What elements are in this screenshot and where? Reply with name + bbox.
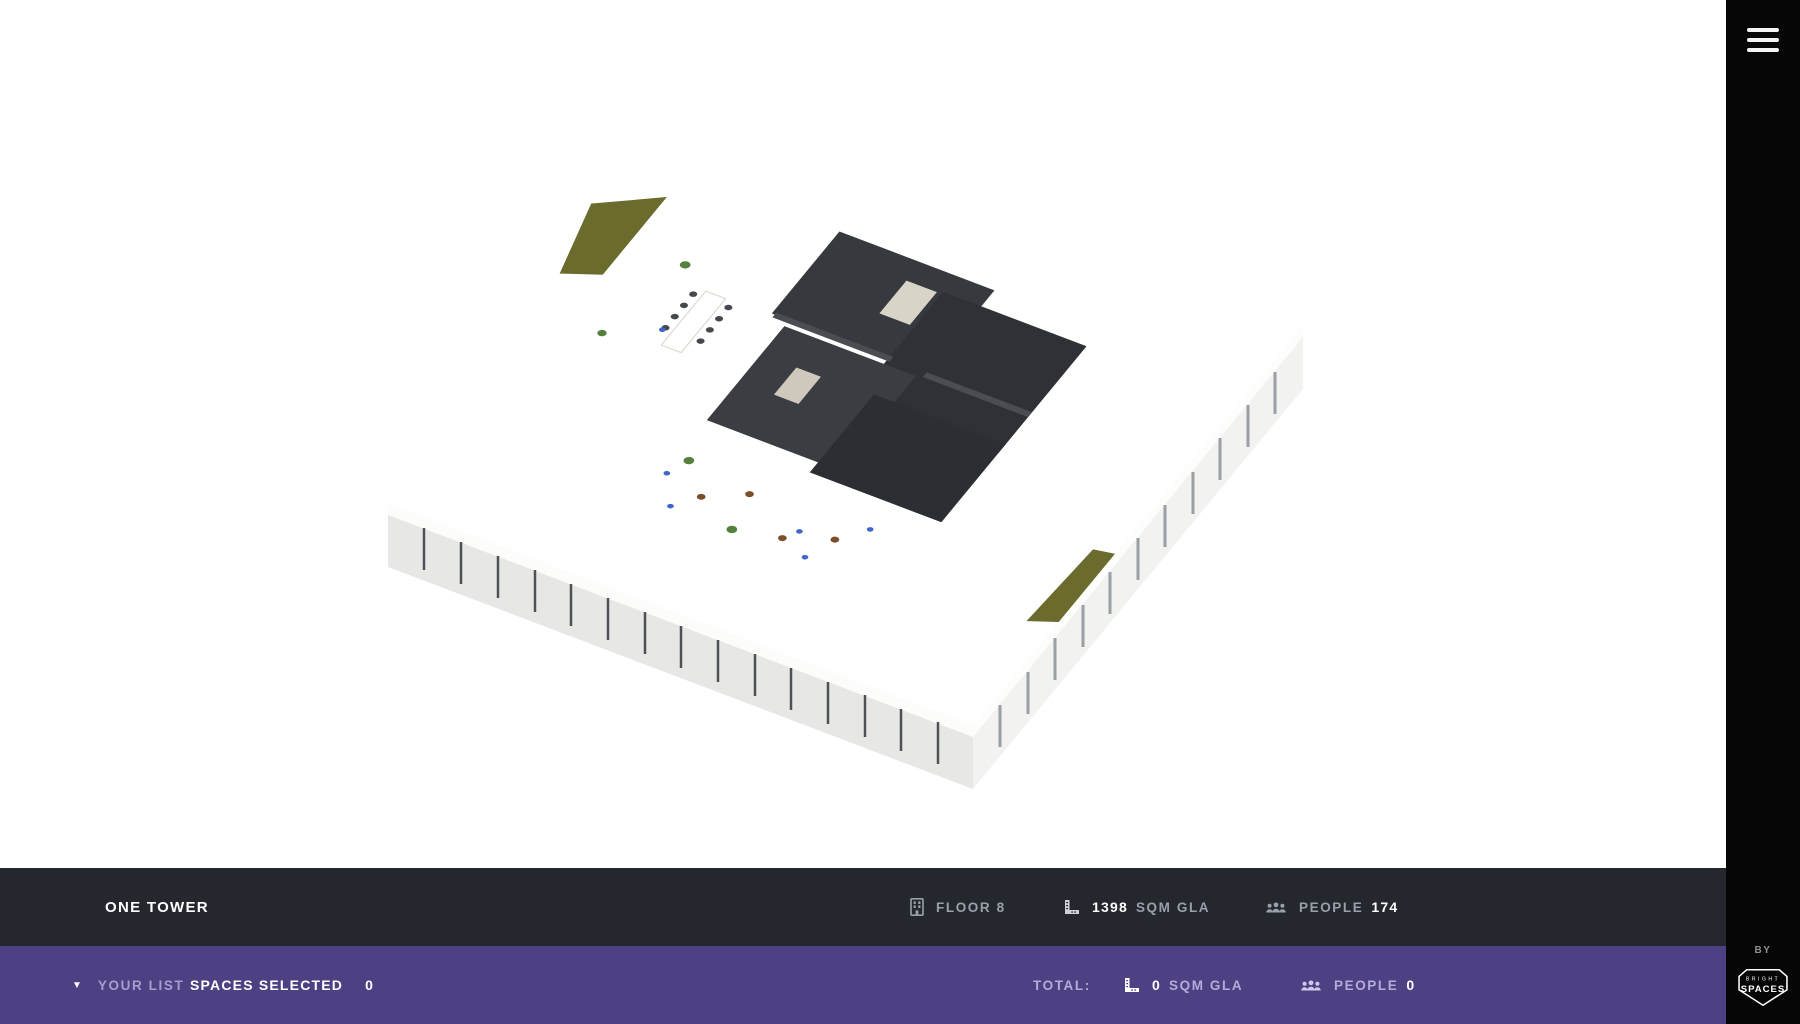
chevron-down-icon: ▼ [72, 980, 82, 991]
area-unit: SQM GLA [1136, 900, 1210, 915]
total-area-value: 0 [1152, 977, 1161, 993]
your-list-label: YOUR LIST [98, 978, 184, 993]
right-sidebar: BY BRIGHT SPACES [1726, 0, 1800, 1024]
total-people-label: PEOPLE [1334, 978, 1398, 993]
total-area-unit: SQM GLA [1169, 978, 1243, 993]
building-icon [910, 898, 924, 916]
selection-bar: ▼ YOUR LIST SPACES SELECTED 0 TOTAL: 0 S… [0, 946, 1800, 1024]
area-value: 1398 [1092, 899, 1128, 915]
people-stat: PEOPLE 174 [1265, 868, 1398, 946]
by-label: BY [1755, 945, 1772, 956]
your-list-toggle[interactable]: ▼ YOUR LIST [72, 946, 184, 1024]
svg-text:SPACES: SPACES [1741, 984, 1785, 995]
spaces-selected: SPACES SELECTED 0 [190, 946, 374, 1024]
total-people-value: 0 [1406, 977, 1415, 993]
building-floor-plate [350, 87, 1338, 741]
people-icon [1265, 901, 1287, 914]
total-people-stat: PEOPLE 0 [1300, 946, 1415, 1024]
total-label: TOTAL: [1033, 978, 1091, 993]
svg-text:BRIGHT: BRIGHT [1746, 976, 1780, 982]
floor-stat: FLOOR 8 [910, 868, 1006, 946]
ruler-icon [1063, 899, 1080, 916]
floor-label: FLOOR 8 [936, 900, 1006, 915]
floor-plan-3d[interactable] [0, 0, 1800, 868]
people-value: 174 [1371, 899, 1398, 915]
ruler-icon [1123, 977, 1140, 994]
brightspaces-branding: BY BRIGHT SPACES [1734, 945, 1792, 1010]
hamburger-icon [1747, 28, 1779, 32]
spaces-selected-label: SPACES SELECTED [190, 977, 343, 993]
brightspaces-logo: BRIGHT SPACES [1734, 964, 1792, 1010]
area-stat: 1398 SQM GLA [1063, 868, 1210, 946]
building-bar: ONE TOWER FLOOR 8 1398 SQM GLA [0, 868, 1800, 946]
people-icon [1300, 979, 1322, 992]
building-name: ONE TOWER [105, 868, 209, 946]
menu-button[interactable] [1747, 28, 1779, 58]
people-label: PEOPLE [1299, 900, 1363, 915]
total-area-stat: 0 SQM GLA [1123, 946, 1243, 1024]
total-label-item: TOTAL: [1033, 946, 1091, 1024]
spaces-selected-count: 0 [365, 977, 374, 993]
